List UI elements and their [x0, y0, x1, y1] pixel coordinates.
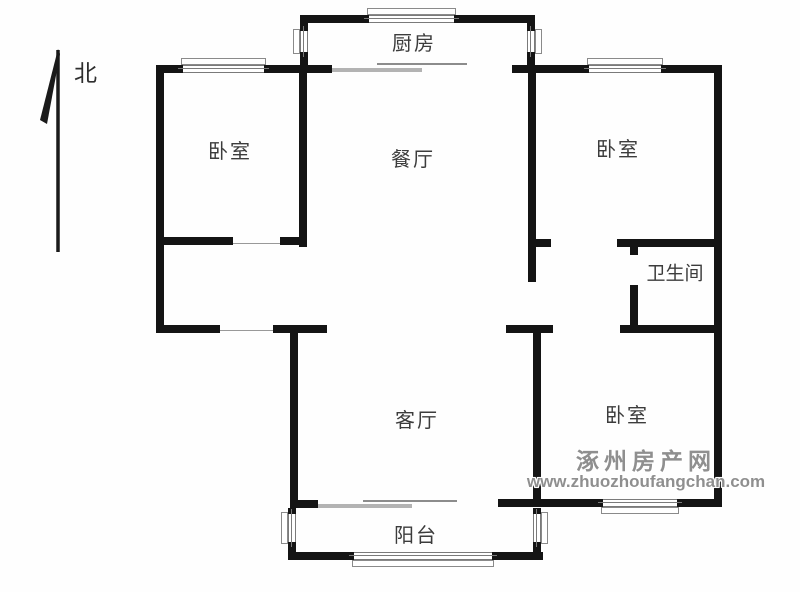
room-label-balcony: 阳台: [394, 526, 438, 546]
room-label-bedroom-tl: 卧室: [208, 142, 252, 162]
wall: [620, 325, 722, 333]
window: [533, 508, 541, 548]
sliding-door-line: [377, 63, 467, 65]
window: [300, 25, 308, 58]
wall: [630, 285, 638, 325]
wall: [536, 239, 551, 247]
north-arrow-icon: [34, 44, 78, 260]
wall: [290, 500, 318, 508]
room-label-bedroom-tr: 卧室: [596, 140, 640, 160]
sliding-door-line: [363, 500, 457, 502]
window: [348, 552, 498, 560]
window: [527, 25, 535, 58]
window: [583, 65, 667, 73]
watermark-site-name: 涿州房产网: [512, 449, 780, 473]
door-opening: [233, 243, 280, 244]
room-label-bathroom: 卫生间: [646, 265, 703, 284]
window: [288, 508, 296, 548]
door-opening: [220, 330, 273, 331]
wall: [156, 325, 220, 333]
wall: [683, 499, 722, 507]
wall: [506, 325, 553, 333]
room-label-kitchen: 厨房: [392, 34, 436, 54]
wall: [288, 552, 350, 560]
wall: [299, 65, 307, 247]
wall: [617, 239, 722, 247]
wall: [498, 499, 597, 507]
window: [363, 15, 460, 23]
window: [597, 499, 683, 507]
room-label-bedroom-br: 卧室: [605, 406, 649, 426]
sliding-door-line: [332, 68, 422, 72]
wall: [156, 65, 164, 332]
room-label-living: 客厅: [395, 411, 439, 431]
room-label-dining: 餐厅: [391, 150, 435, 170]
wall: [156, 237, 233, 245]
sliding-door-line: [318, 504, 412, 508]
window: [177, 65, 270, 73]
wall: [280, 237, 307, 245]
wall: [273, 325, 327, 333]
watermark: 涿州房产网 www.zhuozhoufangchan.com: [512, 449, 780, 491]
north-label: 北: [74, 62, 97, 85]
watermark-site-url: www.zhuozhoufangchan.com: [512, 473, 780, 491]
wall: [528, 65, 536, 282]
wall: [714, 65, 722, 507]
floor-plan: 北 厨房 餐厅 卧室 卧室 卫生间 客厅 卧室 阳台 涿州房产网 www.zhu…: [0, 0, 800, 592]
wall: [630, 247, 638, 255]
wall: [290, 333, 298, 500]
